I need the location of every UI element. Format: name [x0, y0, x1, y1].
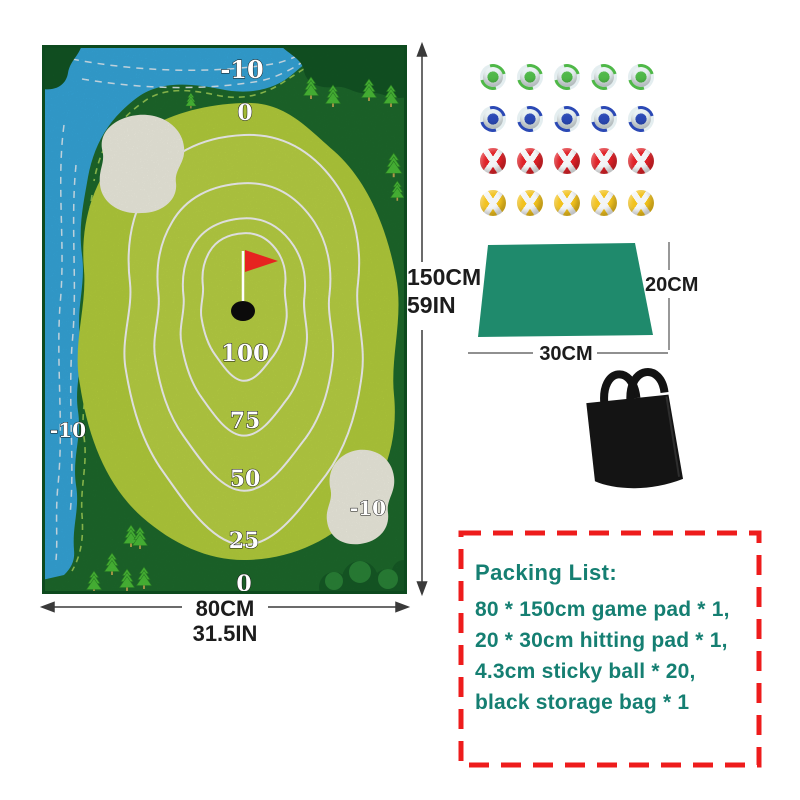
product-infographic: -10 0 100 75 50 25 0 -10 -10 — [0, 0, 800, 800]
sticky-ball-yellow — [480, 190, 506, 216]
mat-label-bunker-right: -10 — [350, 496, 386, 520]
game-mat-illustration: -10 0 100 75 50 25 0 -10 -10 — [42, 45, 407, 594]
packing-list-title: Packing List: — [475, 560, 730, 586]
sticky-ball-yellow — [517, 190, 543, 216]
sticky-ball-green — [475, 59, 511, 95]
ball-row-red — [480, 148, 654, 174]
ball-row-green — [480, 64, 654, 90]
hitting-pad-surface — [478, 243, 653, 337]
sticky-ball-blue — [475, 101, 511, 137]
packing-list-item: 20 * 30cm hitting pad * 1, — [475, 625, 730, 656]
mat-label-75: 75 — [230, 408, 261, 434]
packing-list-content: Packing List: 80 * 150cm game pad * 1, 2… — [475, 560, 730, 718]
packing-list-item: black storage bag * 1 — [475, 687, 730, 718]
packing-list-item: 4.3cm sticky ball * 20, — [475, 656, 730, 687]
sticky-ball-green — [586, 59, 622, 95]
sticky-ball-red — [628, 148, 654, 174]
sticky-ball-green — [512, 59, 548, 95]
mat-label-zero-bottom: 0 — [236, 571, 251, 594]
hitting-pad — [470, 235, 700, 360]
sticky-ball-green — [549, 59, 585, 95]
bag-body — [585, 393, 685, 489]
sticky-balls-grid — [480, 64, 654, 216]
sticky-ball-yellow — [591, 190, 617, 216]
sticky-ball-red — [591, 148, 617, 174]
mat-width-cm: 80CM — [140, 596, 310, 621]
sticky-ball-blue — [586, 101, 622, 137]
packing-list-box: Packing List: 80 * 150cm game pad * 1, 2… — [458, 530, 762, 768]
sticky-ball-red — [517, 148, 543, 174]
mat-label-water-top: -10 — [220, 55, 263, 84]
mat-width-dimension: 80CM 31.5IN — [140, 596, 310, 646]
sticky-ball-green — [623, 59, 659, 95]
mat-label-100: 100 — [221, 340, 269, 367]
sticky-ball-red — [480, 148, 506, 174]
sticky-ball-yellow — [628, 190, 654, 216]
target-hole — [231, 301, 255, 321]
sticky-ball-yellow — [554, 190, 580, 216]
mat-label-zero-top: 0 — [237, 100, 252, 126]
storage-bag — [570, 352, 700, 494]
sticky-ball-blue — [512, 101, 548, 137]
ball-row-blue — [480, 106, 654, 132]
mat-label-water-left: -10 — [50, 418, 86, 442]
sticky-ball-blue — [549, 101, 585, 137]
mat-label-50: 50 — [230, 466, 261, 492]
mat-width-in: 31.5IN — [140, 621, 310, 646]
ball-row-yellow — [480, 190, 654, 216]
sticky-ball-blue — [623, 101, 659, 137]
mat-label-25: 25 — [229, 528, 260, 554]
sticky-ball-red — [554, 148, 580, 174]
packing-list-item: 80 * 150cm game pad * 1, — [475, 594, 730, 625]
